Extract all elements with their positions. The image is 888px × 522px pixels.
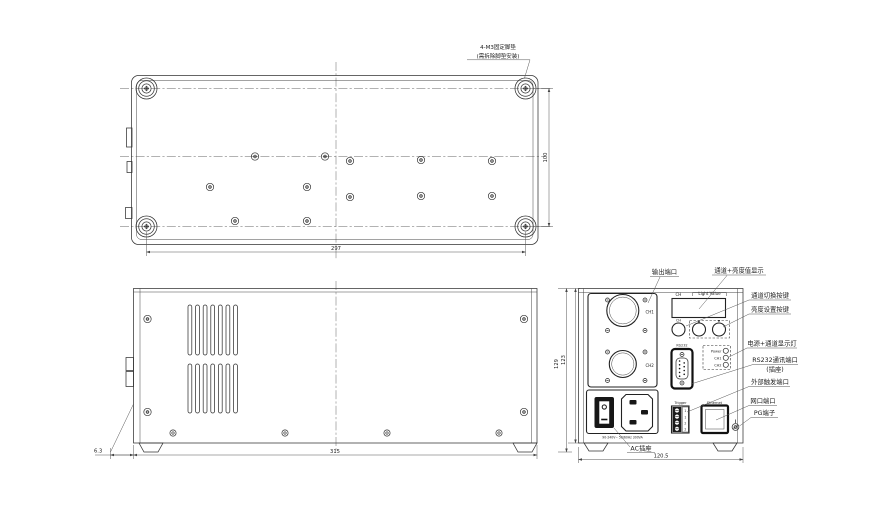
dim-123: 123 (561, 355, 567, 365)
callout-leds: 电源+通道显示灯 (747, 339, 797, 348)
output-plate (588, 294, 657, 388)
brightness-up-button (693, 323, 706, 336)
view-bottom: 4-M3固定脚垫 (需拆除脚垫安装) 297 100 (120, 43, 553, 260)
screw (384, 430, 390, 436)
screw (231, 217, 238, 224)
view-rear-panel: CH1 CH2 CH Light Value CH ▲ ▼ RS232 Powe… (579, 289, 744, 464)
screw (417, 156, 424, 163)
foot-pad-note-line1: 4-M3固定脚垫 (480, 43, 516, 51)
dim-6-3: 6.3 (94, 449, 102, 455)
foot (513, 443, 537, 452)
side-connector-bump (126, 358, 134, 371)
side-body-outline (134, 289, 538, 444)
side-connector-bump (126, 208, 133, 219)
screw (520, 408, 527, 415)
foot-pad-note-line2: (需拆除脚垫安装) (477, 52, 520, 60)
drawing-svg: 4-M3固定脚垫 (需拆除脚垫安装) 297 100 (0, 0, 888, 522)
enclosure-inner-outline (137, 81, 534, 240)
screw (282, 430, 288, 436)
led-ch2-label: CH2 (714, 363, 721, 367)
vent-slots (188, 305, 237, 413)
trigger-label: Trigger (673, 401, 687, 405)
engineering-drawing: 4-M3固定脚垫 (需拆除脚垫安装) 297 100 (0, 0, 888, 522)
dim-129: 129 (554, 359, 560, 369)
foot (584, 443, 608, 451)
screw (206, 183, 213, 190)
ch1-led (723, 355, 728, 360)
callout-trigger: 外部触发端口 (751, 377, 789, 386)
screw (417, 192, 424, 199)
leader-leds (729, 348, 747, 357)
callout-output-port: 输出端口 (652, 267, 677, 276)
callout-pg: PG端子 (754, 408, 775, 417)
screw (346, 193, 353, 200)
screw (496, 430, 502, 436)
ch2-led (723, 362, 728, 367)
channel-switch-button (672, 323, 685, 336)
trigger-pin-2: 1 (684, 415, 686, 419)
callout-ac: AC插座 (630, 444, 651, 453)
screw (488, 157, 495, 164)
offset-leader (111, 404, 134, 452)
foot (139, 443, 163, 452)
led-power-label: Power (711, 349, 722, 353)
screw (170, 430, 176, 436)
callout-brightness: 亮度设置按键 (751, 305, 789, 314)
leader-rs232 (691, 365, 753, 385)
screw (520, 315, 527, 322)
enclosure-outline (132, 76, 539, 245)
callout-display: 通道+亮度值显示 (714, 266, 763, 275)
callout-lan: 网口端口 (750, 396, 775, 405)
screw (144, 315, 151, 322)
height-dimensions: 129 123 (554, 289, 580, 453)
ch2-output-connector (609, 351, 636, 378)
callout-rs232-line2: (插座) (766, 365, 784, 374)
dim-120-5: 120.5 (654, 454, 669, 460)
display-ch-label: CH (676, 292, 682, 297)
dim-297: 297 (331, 246, 341, 252)
callout-rs232-line1: RS232通讯端口 (752, 355, 798, 364)
screw (303, 217, 310, 224)
ac-inlet-pins (630, 400, 649, 425)
display-value-label: Light Value (698, 291, 721, 296)
rs232-connector (672, 349, 693, 389)
trigger-pin-1: 1 (684, 409, 686, 413)
led-ch1-label: CH1 (714, 356, 721, 360)
screw (488, 192, 495, 199)
view-side: 315 6.3 (94, 281, 537, 459)
dim-100: 100 (543, 153, 549, 163)
dim-315: 315 (330, 449, 340, 455)
display-window (672, 299, 726, 318)
callout-ch-switch: 通道切换按键 (751, 291, 789, 300)
leader-pg (740, 418, 752, 427)
side-connector-bump (126, 372, 134, 387)
trigger-pin-4: 2 (684, 428, 686, 432)
rs232-label: RS232 (676, 344, 687, 348)
ch2-label: CH2 (646, 363, 655, 368)
screw (144, 408, 151, 415)
ch1-label: CH1 (646, 310, 655, 315)
btn-ch-label: CH (676, 319, 681, 323)
screw (303, 183, 310, 190)
ch1-output-connector (607, 295, 639, 327)
leader-output-port (648, 277, 660, 303)
brightness-down-button (713, 323, 726, 336)
trigger-pin-3: 2 (684, 421, 686, 425)
screw (346, 157, 353, 164)
power-led (723, 348, 728, 353)
foot (713, 443, 737, 451)
